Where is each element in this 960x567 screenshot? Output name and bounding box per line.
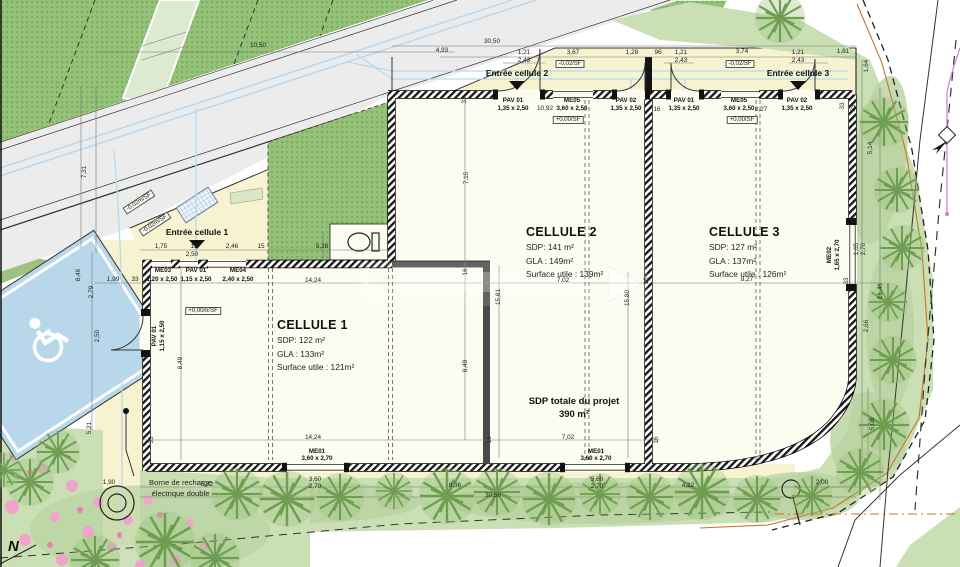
cell-surface: Surface utile : 121m² [277,362,354,372]
charging-line2: électrique double [133,488,228,499]
cell-title: CELLULE 1 [277,318,354,332]
total-value: 390 m² [529,409,620,420]
charging-station-label: Borne de recharge électrique double [133,477,228,500]
cell-title: CELLULE 3 [709,225,786,239]
cell-1-info: CELLULE 1 SDP: 122 m² GLA : 133m² Surfac… [277,318,354,376]
cell-gla: GLA : 137m² [709,256,786,266]
total-title: SDP totale du projet [529,396,620,407]
cell-sdp: SDP: 141 m² [526,242,603,252]
cell-3-info: CELLULE 3 SDP: 127 m² GLA : 137m² Surfac… [709,225,786,283]
toilet-fixture [348,233,379,251]
charging-line1: Borne de recharge [133,477,228,488]
utility-line-purple [932,48,960,216]
project-total: SDP totale du projet 390 m² [529,396,620,420]
cell-surface: Surface utile : 139m² [526,269,603,279]
cell-gla: GLA : 149m² [526,256,603,266]
cell-sdp: SDP: 122 m² [277,335,354,345]
cell-surface: Surface utile : 126m² [709,269,786,279]
cell-2-info: CELLULE 2 SDP: 141 m² GLA : 149m² Surfac… [526,225,603,283]
site-plan: 10,5030,504,931,212,433,671,28961,212,43… [0,0,960,567]
watermark [358,262,648,306]
north-label: N [8,538,19,555]
cell-gla: GLA : 133m² [277,349,354,359]
cell-title: CELLULE 2 [526,225,603,239]
cell-sdp: SDP: 127 m² [709,242,786,252]
